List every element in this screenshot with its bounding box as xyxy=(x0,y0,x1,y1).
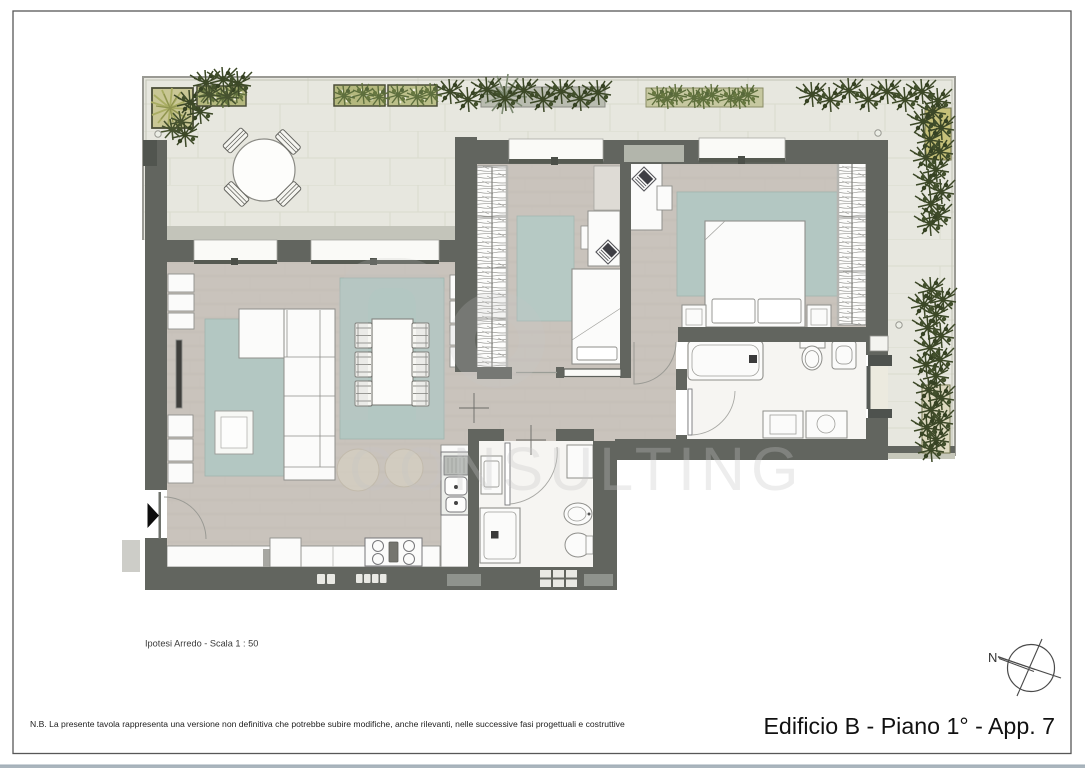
svg-text:N.B. La presente tavola rappre: N.B. La presente tavola rappresenta una … xyxy=(30,719,625,729)
svg-text:CONSULTING: CONSULTING xyxy=(349,435,804,503)
svg-text:Edificio B - Piano 1° - App. 7: Edificio B - Piano 1° - App. 7 xyxy=(763,713,1055,739)
svg-text:N: N xyxy=(988,650,997,665)
svg-text:Ipotesi Arredo - Scala 1 : 5: Ipotesi Arredo - Scala 1 : 50 xyxy=(145,639,258,649)
